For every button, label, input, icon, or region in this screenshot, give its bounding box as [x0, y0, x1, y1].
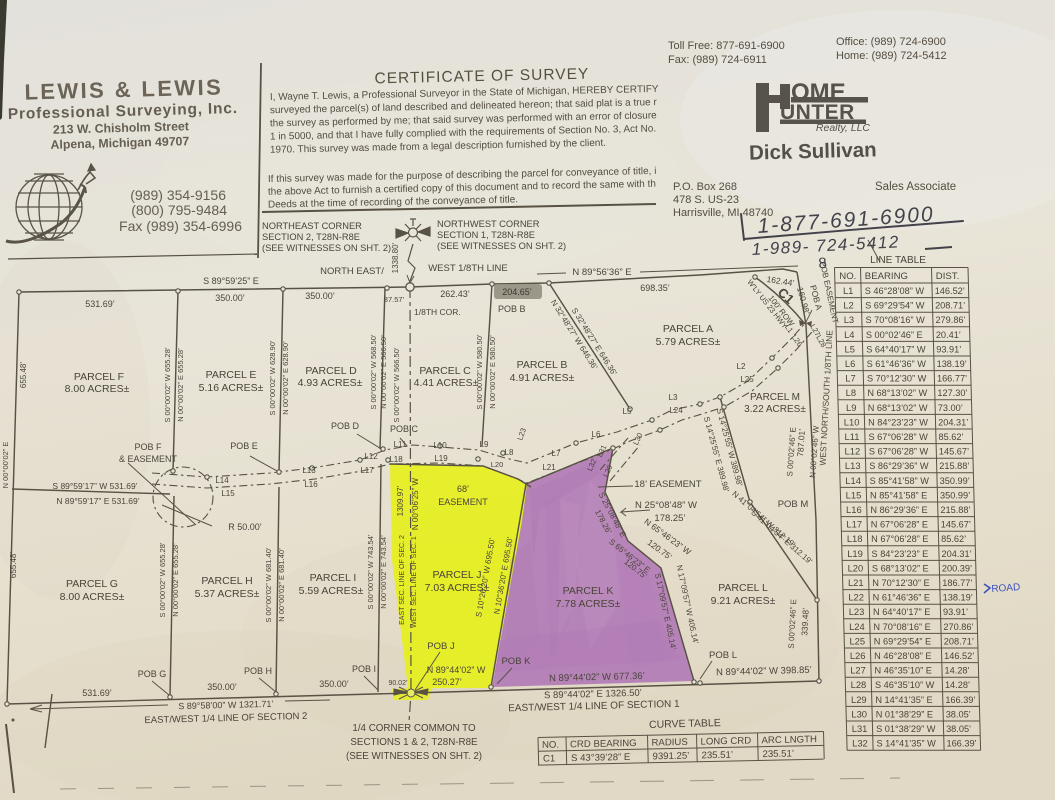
svg-text:127.30’: 127.30’ — [937, 388, 967, 398]
svg-text:208.71’: 208.71’ — [935, 301, 965, 311]
svg-text:N 00°00’02” E 655.28’: N 00°00’02” E 655.28’ — [176, 348, 185, 422]
svg-text:S 89°59’17” W 531.69’: S 89°59’17” W 531.69’ — [52, 481, 137, 491]
svg-text:250.27’: 250.27’ — [432, 677, 462, 687]
svg-text:PARCEL L: PARCEL L — [718, 582, 768, 594]
svg-text:L27: L27 — [850, 665, 866, 676]
svg-text:93.91’: 93.91’ — [936, 344, 961, 354]
svg-text:POB M: POB M — [778, 499, 809, 510]
svg-text:20.41’: 20.41’ — [936, 330, 961, 340]
svg-text:350.00’: 350.00’ — [207, 682, 237, 692]
svg-text:8: 8 — [818, 255, 828, 273]
svg-text:93.91’: 93.91’ — [943, 607, 968, 617]
svg-text:L2: L2 — [843, 300, 853, 311]
svg-text:655.48’: 655.48’ — [19, 362, 28, 388]
svg-text:5.16 ACRES±: 5.16 ACRES± — [199, 382, 264, 394]
svg-text:73.00’: 73.00’ — [938, 403, 963, 413]
svg-text:L14: L14 — [845, 475, 861, 486]
svg-text:145.67’: 145.67’ — [939, 447, 969, 457]
svg-text:L23: L23 — [849, 606, 865, 617]
svg-text:270.86’: 270.86’ — [943, 622, 973, 632]
svg-text:N 14°41’35” E: N 14°41’35” E — [875, 695, 932, 705]
svg-text:L16: L16 — [304, 480, 318, 489]
svg-text:L22: L22 — [848, 592, 864, 603]
svg-text:166.39’: 166.39’ — [946, 739, 976, 749]
svg-text:P.O. Box 268: P.O. Box 268 — [673, 181, 737, 193]
svg-text:S 46°35’10” W: S 46°35’10” W — [875, 680, 935, 690]
svg-text:1/8TH COR.: 1/8TH COR. — [414, 307, 461, 317]
svg-text:L3: L3 — [844, 314, 854, 325]
svg-text:N 70°12’30” E: N 70°12’30” E — [872, 578, 929, 588]
svg-text:L28: L28 — [851, 679, 867, 690]
svg-text:350.00’: 350.00’ — [319, 679, 349, 689]
svg-text:L7: L7 — [552, 449, 561, 458]
svg-text:531.69’: 531.69’ — [85, 299, 115, 309]
svg-text:18’ EASEMENT: 18’ EASEMENT — [634, 479, 701, 490]
svg-text:L25: L25 — [849, 635, 865, 646]
svg-text:L8: L8 — [846, 387, 856, 398]
svg-text:N 67°06’28” E: N 67°06’28” E — [871, 534, 928, 544]
svg-text:166.77’: 166.77’ — [937, 374, 967, 384]
svg-text:(989) 354-9156: (989) 354-9156 — [130, 187, 226, 203]
svg-text:L10: L10 — [433, 441, 447, 450]
svg-text:POB L: POB L — [709, 650, 737, 661]
svg-text:L20: L20 — [848, 562, 864, 573]
svg-text:S 00°00’02” W 566.50’: S 00°00’02” W 566.50’ — [392, 347, 401, 422]
svg-text:NORTH EAST/: NORTH EAST/ — [320, 266, 384, 277]
svg-text:S 69°29’54” W: S 69°29’54” W — [865, 301, 925, 311]
svg-text:S 43°39’28” E: S 43°39’28” E — [571, 752, 630, 764]
svg-text:L17: L17 — [846, 519, 862, 530]
svg-text:PARCEL H: PARCEL H — [201, 575, 252, 587]
svg-text:215.88’: 215.88’ — [940, 505, 970, 515]
svg-text:L13: L13 — [845, 460, 861, 471]
svg-text:ROAD: ROAD — [991, 582, 1021, 595]
svg-text:L6: L6 — [592, 430, 601, 439]
svg-text:S 46°28’08” W: S 46°28’08” W — [865, 286, 925, 296]
svg-text:L24: L24 — [669, 406, 683, 415]
svg-text:L10: L10 — [844, 416, 860, 427]
svg-text:PARCEL A: PARCEL A — [663, 323, 713, 335]
svg-text:PARCEL I: PARCEL I — [310, 572, 357, 584]
svg-text:LEWIS & LEWIS: LEWIS & LEWIS — [24, 74, 223, 104]
svg-text:LINE TABLE: LINE TABLE — [870, 255, 926, 266]
svg-text:L26: L26 — [850, 650, 866, 661]
svg-text:Dick Sullivan: Dick Sullivan — [749, 138, 877, 164]
svg-text:PARCEL B: PARCEL B — [517, 359, 568, 371]
svg-text:CRD BEARING: CRD BEARING — [570, 738, 637, 750]
svg-text:S 14°41’35” W: S 14°41’35” W — [876, 739, 936, 749]
svg-text:(800) 795-9484: (800) 795-9484 — [131, 202, 227, 218]
svg-text:200.39’: 200.39’ — [942, 563, 972, 573]
svg-text:N 64°40’17” E: N 64°40’17” E — [873, 607, 930, 617]
svg-text:L19: L19 — [847, 548, 863, 559]
svg-text:SECTION 2, T28N-R8E: SECTION 2, T28N-R8E — [262, 232, 360, 242]
svg-text:S 00°00’02” W 743.54’: S 00°00’02” W 743.54’ — [366, 534, 375, 609]
svg-text:S 00°00’02” W 568.50’: S 00°00’02” W 568.50’ — [369, 334, 378, 409]
svg-text:EAST SEC. LINE OF SEC. 2: EAST SEC. LINE OF SEC. 2 — [399, 535, 406, 625]
svg-text:C1: C1 — [543, 753, 555, 764]
svg-text:L11: L11 — [845, 431, 860, 442]
svg-text:204.31’: 204.31’ — [938, 417, 968, 427]
svg-text:698.35’: 698.35’ — [640, 283, 670, 293]
svg-text:PARCEL M: PARCEL M — [750, 392, 800, 403]
svg-text:N 86°29’36” E: N 86°29’36” E — [870, 505, 927, 515]
svg-text:Fax (989) 354-6996: Fax (989) 354-6996 — [119, 218, 242, 234]
svg-text:L25: L25 — [740, 375, 754, 384]
svg-text:POB I: POB I — [352, 664, 376, 674]
svg-text:L15: L15 — [846, 489, 862, 500]
svg-text:4.41 ACRES±: 4.41 ACRES± — [414, 377, 479, 389]
svg-text:L3: L3 — [669, 393, 678, 402]
svg-text:L21: L21 — [542, 463, 556, 472]
svg-text:PARCEL J: PARCEL J — [432, 569, 481, 581]
svg-text:POB C: POB C — [390, 424, 419, 434]
svg-text:L14: L14 — [215, 476, 229, 485]
svg-text:PARCEL C: PARCEL C — [419, 365, 471, 377]
svg-text:L9: L9 — [480, 440, 489, 449]
svg-text:EASEMENT: EASEMENT — [438, 497, 488, 507]
svg-text:S 85°41’58” W: S 85°41’58” W — [870, 476, 930, 486]
svg-text:350.99’: 350.99’ — [940, 490, 970, 500]
svg-text:9391.25’: 9391.25’ — [652, 751, 689, 763]
svg-text:8.00 ACRES±: 8.00 ACRES± — [60, 591, 125, 603]
svg-text:POB B: POB B — [498, 304, 526, 314]
svg-text:PARCEL F: PARCEL F — [74, 371, 124, 383]
svg-text:N 67°06’28” E: N 67°06’28” E — [871, 520, 928, 530]
svg-text:S 00°00’02” W 655.28’: S 00°00’02” W 655.28’ — [163, 347, 172, 422]
svg-text:L12: L12 — [845, 446, 861, 457]
svg-text:LONG CRD: LONG CRD — [701, 736, 752, 748]
svg-text:POB H: POB H — [244, 666, 272, 676]
svg-text:5.59 ACRES±: 5.59 ACRES± — [299, 585, 364, 597]
svg-text:S 89°59’25” E: S 89°59’25” E — [203, 276, 259, 286]
svg-text:PARCEL K: PARCEL K — [563, 585, 614, 597]
svg-text:262.43’: 262.43’ — [440, 289, 470, 299]
svg-text:POB J: POB J — [427, 641, 455, 652]
svg-text:L20: L20 — [491, 460, 504, 469]
svg-text:L9: L9 — [846, 402, 856, 413]
svg-text:N 25°08’48” W: N 25°08’48” W — [635, 500, 697, 511]
svg-text:(SEE WITNESSES ON SHT. 2): (SEE WITNESSES ON SHT. 2) — [262, 243, 391, 253]
svg-text:146.52’: 146.52’ — [944, 651, 974, 661]
svg-text:PARCEL G: PARCEL G — [66, 578, 118, 590]
svg-text:NO.: NO. — [542, 740, 559, 751]
svg-text:138.19’: 138.19’ — [943, 593, 973, 603]
svg-text:S 61°46’36” W: S 61°46’36” W — [867, 359, 927, 369]
svg-text:S 70°08’16” W: S 70°08’16” W — [865, 315, 925, 325]
svg-text:L18: L18 — [389, 455, 403, 464]
svg-text:POB G: POB G — [138, 669, 167, 679]
svg-text:N 00°00’02” E 580.50’: N 00°00’02” E 580.50’ — [488, 335, 497, 409]
svg-text:S 01°38’29” W: S 01°38’29” W — [876, 724, 936, 734]
svg-text:N 46°28’08” E: N 46°28’08” E — [874, 651, 931, 661]
svg-text:(SEE WITNESSES ON SHT. 2): (SEE WITNESSES ON SHT. 2) — [346, 751, 482, 762]
svg-text:POB D: POB D — [331, 421, 360, 431]
svg-text:SECTION 1, T28N-R8E: SECTION 1, T28N-R8E — [437, 230, 535, 240]
svg-text:S 00°02’46” E: S 00°02’46” E — [866, 330, 923, 340]
svg-text:Fax: (989) 724-6911: Fax: (989) 724-6911 — [668, 54, 767, 66]
svg-text:N 61°46’36” E: N 61°46’36” E — [873, 593, 930, 603]
svg-text:339.48’: 339.48’ — [799, 608, 810, 636]
svg-text:478 S. US-23: 478 S. US-23 — [673, 194, 739, 206]
svg-text:138.19’: 138.19’ — [937, 359, 967, 369]
svg-text:38.05’: 38.05’ — [946, 724, 971, 734]
svg-text:RADIUS: RADIUS — [652, 737, 688, 749]
svg-text:L1: L1 — [843, 285, 853, 296]
svg-text:L12: L12 — [364, 452, 378, 461]
svg-text:8.00 ACRES±: 8.00 ACRES± — [65, 383, 130, 395]
svg-text:& EASEMENT: & EASEMENT — [119, 454, 178, 464]
svg-text:N 00°00’02” E 566.50’: N 00°00’02” E 566.50’ — [379, 335, 388, 409]
svg-text:204.65’: 204.65’ — [502, 287, 532, 297]
svg-text:L32: L32 — [852, 738, 868, 749]
svg-text:S 86°29’36” W: S 86°29’36” W — [869, 461, 929, 471]
svg-text:N 00°00’02” E 681.40’: N 00°00’02” E 681.40’ — [277, 548, 286, 622]
svg-text:178.25’: 178.25’ — [654, 513, 685, 524]
svg-text:N 89°44’02” W: N 89°44’02” W — [427, 665, 486, 675]
svg-text:N 68°13’02” W: N 68°13’02” W — [867, 388, 927, 398]
svg-text:215.88’: 215.88’ — [939, 461, 969, 471]
svg-text:1/4 CORNER COMMON TO: 1/4 CORNER COMMON TO — [352, 723, 476, 734]
svg-text:90.02’: 90.02’ — [388, 680, 408, 687]
svg-text:146.52’: 146.52’ — [935, 286, 965, 296]
svg-text:4.91 ACRES±: 4.91 ACRES± — [510, 372, 575, 384]
svg-text:L15: L15 — [221, 489, 235, 498]
svg-text:NO.: NO. — [839, 271, 856, 282]
svg-text:L4: L4 — [844, 329, 854, 340]
svg-text:166.39’: 166.39’ — [945, 695, 975, 705]
svg-text:S 84°23’23” E: S 84°23’23” E — [872, 549, 929, 559]
svg-text:N 70°08’16” E: N 70°08’16” E — [873, 622, 930, 632]
svg-text:S 70°12’30” W: S 70°12’30” W — [867, 374, 927, 384]
svg-text:L16: L16 — [846, 504, 862, 515]
svg-text:L21: L21 — [848, 577, 864, 588]
svg-text:N 00°00’02” E 655.28’: N 00°00’02” E 655.28’ — [171, 543, 180, 617]
svg-text:655.48’: 655.48’ — [9, 552, 18, 578]
svg-text:S 00°00’02” W 681.40’: S 00°00’02” W 681.40’ — [264, 547, 273, 622]
svg-text:N 00°00’02” E 628.90’: N 00°00’02” E 628.90’ — [281, 341, 290, 415]
svg-text:87.57’: 87.57’ — [384, 295, 405, 304]
svg-text:N 69°29’54” E: N 69°29’54” E — [874, 636, 931, 646]
svg-text:(SEE WITNESSES ON SHT. 2): (SEE WITNESSES ON SHT. 2) — [437, 241, 566, 251]
svg-text:186.77’: 186.77’ — [942, 578, 972, 588]
svg-text:531.69’: 531.69’ — [82, 688, 112, 698]
svg-text:14.28’: 14.28’ — [945, 666, 970, 676]
svg-text:350.99’: 350.99’ — [940, 476, 970, 486]
svg-text:L13: L13 — [302, 466, 316, 475]
svg-text:L5: L5 — [623, 407, 632, 416]
svg-text:L19: L19 — [434, 454, 448, 463]
svg-text:S 68°13’02” E: S 68°13’02” E — [872, 563, 929, 573]
svg-text:POB E: POB E — [230, 441, 258, 451]
svg-text:S 00°00’02” W 628.90’: S 00°00’02” W 628.90’ — [268, 340, 277, 415]
svg-text:WEST 1/8TH LINE: WEST 1/8TH LINE — [428, 263, 508, 274]
svg-text:350.00’: 350.00’ — [305, 291, 335, 301]
svg-text:L7: L7 — [845, 373, 855, 384]
svg-text:WEST SEC. LINE OF SEC. 1: WEST SEC. LINE OF SEC. 1 — [411, 536, 418, 628]
svg-text:1309.97’: 1309.97’ — [396, 485, 405, 516]
svg-text:1338.80’: 1338.80’ — [391, 242, 400, 273]
svg-text:S 64°40’17” W: S 64°40’17” W — [866, 344, 926, 354]
svg-text:N 00°06’25” W: N 00°06’25” W — [411, 477, 420, 530]
svg-text:POB K: POB K — [501, 656, 531, 667]
svg-text:L18: L18 — [847, 533, 863, 544]
svg-text:N 68°13’02” W: N 68°13’02” W — [868, 403, 928, 413]
svg-text:N 00°00’02” E: N 00°00’02” E — [1, 442, 10, 489]
svg-text:85.62’: 85.62’ — [938, 432, 963, 442]
svg-text:NORTHEAST CORNER: NORTHEAST CORNER — [262, 221, 362, 231]
svg-text:L6: L6 — [845, 358, 855, 369]
svg-text:L11: L11 — [394, 440, 407, 449]
svg-text:N 46°35’10” E: N 46°35’10” E — [875, 666, 932, 676]
svg-text:L2: L2 — [737, 362, 746, 371]
svg-text:N 84°23’23” W: N 84°23’23” W — [868, 417, 928, 427]
svg-text:Sales Associate: Sales Associate — [875, 181, 956, 193]
svg-text:5.37 ACRES±: 5.37 ACRES± — [195, 588, 260, 600]
svg-text:CURVE TABLE: CURVE TABLE — [649, 717, 721, 731]
svg-text:L8: L8 — [505, 448, 514, 457]
svg-text:350.00’: 350.00’ — [215, 293, 245, 303]
svg-text:Toll Free: 877-691-6900: Toll Free: 877-691-6900 — [668, 40, 785, 52]
svg-text:208.71’: 208.71’ — [944, 636, 974, 646]
svg-text:S 00°00’02” W 655.28’: S 00°00’02” W 655.28’ — [158, 542, 167, 617]
svg-text:235.51’: 235.51’ — [763, 748, 794, 760]
svg-text:9.21 ACRES±: 9.21 ACRES± — [711, 595, 776, 607]
svg-text:ARC LNGTH: ARC LNGTH — [762, 734, 818, 746]
svg-text:S 67°06’28” W: S 67°06’28” W — [868, 432, 928, 442]
svg-text:N 00°00’02” E 743.54’: N 00°00’02” E 743.54’ — [379, 535, 388, 609]
svg-text:S 00°00’02” W 580.50’: S 00°00’02” W 580.50’ — [475, 334, 484, 409]
svg-text:POB F: POB F — [134, 442, 162, 452]
svg-text:68’: 68’ — [457, 484, 469, 494]
svg-text:DIST.: DIST. — [936, 271, 959, 282]
svg-text:235.51’: 235.51’ — [702, 750, 733, 762]
svg-text:14.28’: 14.28’ — [945, 680, 970, 690]
svg-text:N 89°56’36” E: N 89°56’36” E — [572, 267, 631, 278]
svg-text:BEARING: BEARING — [865, 271, 908, 282]
svg-text:85.62’: 85.62’ — [941, 534, 966, 544]
svg-text:L17: L17 — [360, 466, 374, 475]
svg-text:7.78 ACRES±: 7.78 ACRES± — [556, 598, 621, 610]
svg-text:S 67°06’28” W: S 67°06’28” W — [869, 447, 929, 457]
svg-text:L5: L5 — [844, 343, 854, 354]
svg-text:5.79 ACRES±: 5.79 ACRES± — [656, 336, 721, 348]
svg-text:L24: L24 — [849, 621, 865, 632]
svg-text:N 85°41’58” E: N 85°41’58” E — [870, 490, 927, 500]
svg-text:R 50.00’: R 50.00’ — [228, 522, 262, 532]
svg-text:Home: (989) 724-5412: Home: (989) 724-5412 — [836, 50, 947, 62]
svg-text:NORTHWEST CORNER: NORTHWEST CORNER — [437, 219, 540, 229]
svg-text:SECTIONS 1 & 2, T28N-R8E: SECTIONS 1 & 2, T28N-R8E — [350, 737, 478, 748]
svg-text:4.93 ACRES±: 4.93 ACRES± — [298, 377, 363, 389]
svg-text:3.22 ACRES±: 3.22 ACRES± — [744, 404, 806, 415]
svg-text:L31: L31 — [852, 723, 868, 734]
svg-text:PARCEL E: PARCEL E — [206, 369, 257, 381]
svg-text:N 89°59’17” E 531.69’: N 89°59’17” E 531.69’ — [56, 496, 139, 506]
svg-text:PARCEL D: PARCEL D — [305, 365, 357, 377]
svg-text:L30: L30 — [851, 708, 867, 719]
svg-text:N 01°38’29” E: N 01°38’29” E — [876, 709, 933, 719]
svg-text:145.67’: 145.67’ — [941, 520, 971, 530]
svg-text:38.05’: 38.05’ — [946, 709, 971, 719]
svg-text:L29: L29 — [851, 694, 867, 705]
svg-text:Office: (989) 724-6900: Office: (989) 724-6900 — [836, 36, 946, 48]
svg-text:Realty, LLC: Realty, LLC — [816, 122, 870, 134]
svg-text:279.86’: 279.86’ — [935, 315, 965, 325]
svg-text:204.31’: 204.31’ — [942, 549, 972, 559]
